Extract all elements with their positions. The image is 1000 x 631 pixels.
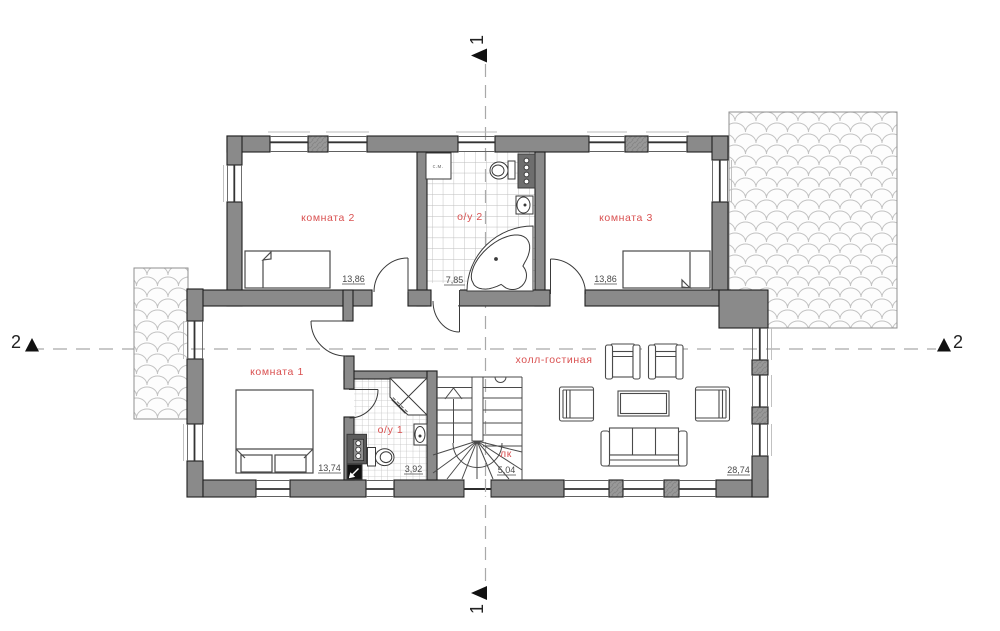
svg-text:холл-гостиная: холл-гостиная (516, 354, 593, 366)
svg-text:о/у 2: о/у 2 (457, 211, 483, 223)
svg-text:13,74: 13,74 (318, 463, 341, 473)
svg-text:2: 2 (953, 332, 963, 352)
svg-text:с.м.: с.м. (433, 164, 444, 170)
svg-text:13,86: 13,86 (594, 274, 617, 284)
svg-text:лк: лк (500, 448, 512, 460)
svg-text:7,85: 7,85 (446, 275, 464, 285)
svg-text:13,86: 13,86 (342, 274, 365, 284)
svg-text:комната 3: комната 3 (599, 212, 653, 224)
svg-text:2: 2 (11, 332, 21, 352)
svg-text:о/у 1: о/у 1 (378, 424, 404, 436)
svg-text:5,04: 5,04 (498, 465, 516, 475)
svg-text:1: 1 (467, 604, 487, 614)
svg-text:комната 2: комната 2 (301, 212, 355, 224)
svg-text:3,92: 3,92 (405, 464, 423, 474)
svg-text:1: 1 (467, 35, 487, 45)
svg-text:комната 1: комната 1 (250, 366, 304, 378)
svg-text:28,74: 28,74 (727, 465, 750, 475)
